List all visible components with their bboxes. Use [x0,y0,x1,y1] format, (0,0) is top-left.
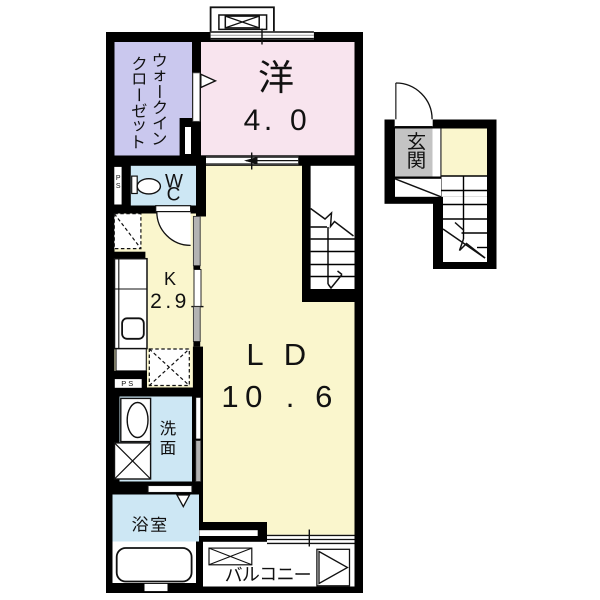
svg-text:4: 4 [244,104,261,137]
svg-text:6: 6 [315,379,332,414]
svg-text:2.9: 2.9 [150,290,190,313]
svg-text:P: P [116,175,121,182]
svg-text:D: D [284,337,306,372]
svg-text:S: S [116,183,121,190]
svg-text:C: C [167,185,181,206]
svg-text:0: 0 [245,379,262,414]
svg-text:1: 1 [221,379,238,414]
svg-text:.: . [286,379,295,414]
svg-text:0: 0 [290,104,307,137]
svg-text:L: L [246,337,263,372]
svg-text:K: K [164,269,176,289]
svg-text:PS: PS [121,379,135,388]
svg-text:.: . [264,104,272,137]
